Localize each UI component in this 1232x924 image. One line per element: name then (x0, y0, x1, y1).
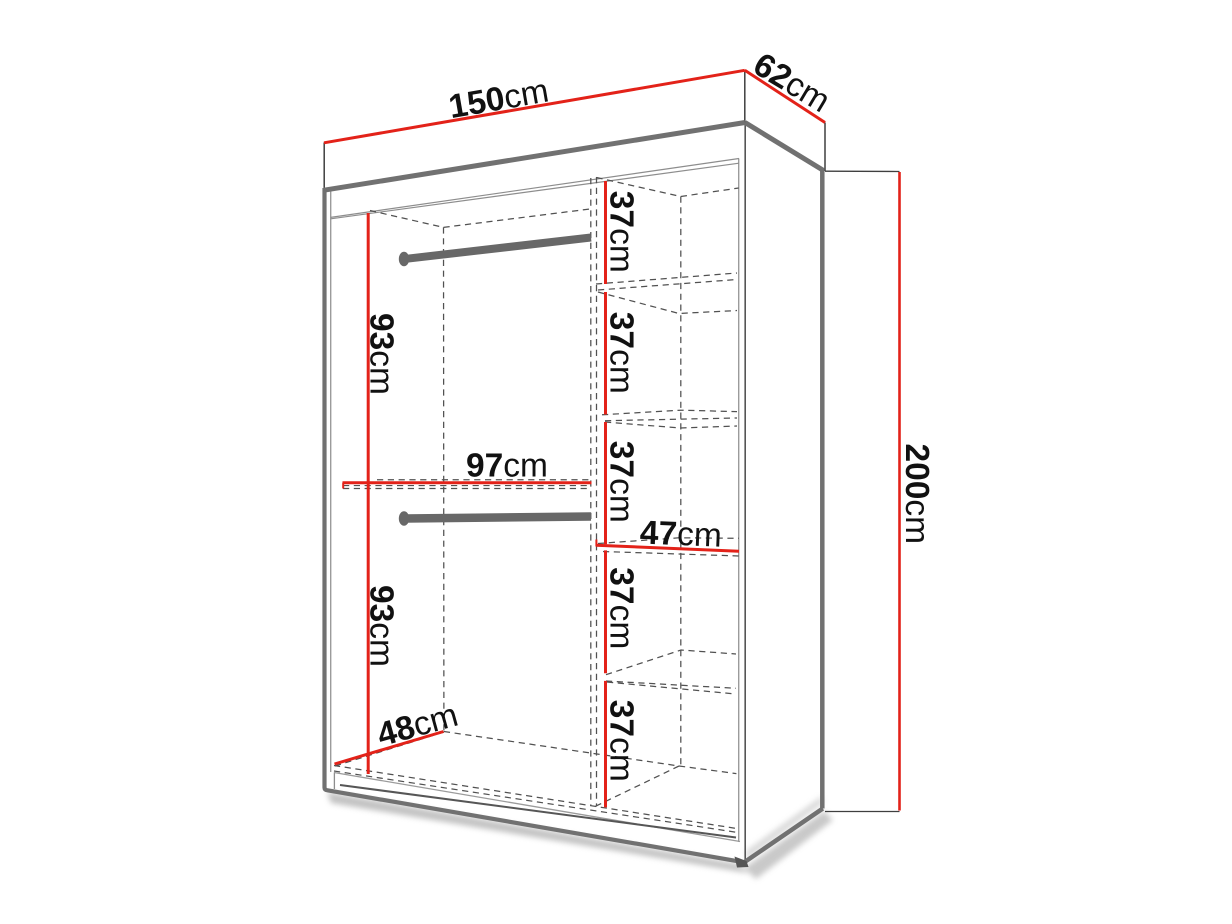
svg-text:62cm: 62cm (747, 46, 836, 120)
svg-text:150cm: 150cm (446, 72, 551, 126)
svg-text:200cm: 200cm (898, 444, 935, 545)
svg-text:37cm: 37cm (603, 312, 640, 394)
svg-text:37cm: 37cm (603, 441, 640, 523)
svg-text:93cm: 93cm (363, 313, 400, 395)
svg-text:37cm: 37cm (603, 700, 640, 782)
svg-text:37cm: 37cm (603, 567, 640, 649)
svg-text:93cm: 93cm (363, 585, 400, 667)
svg-text:47cm: 47cm (639, 515, 722, 555)
svg-text:37cm: 37cm (603, 191, 640, 273)
svg-text:48cm: 48cm (373, 697, 462, 755)
svg-text:97cm: 97cm (466, 448, 548, 485)
